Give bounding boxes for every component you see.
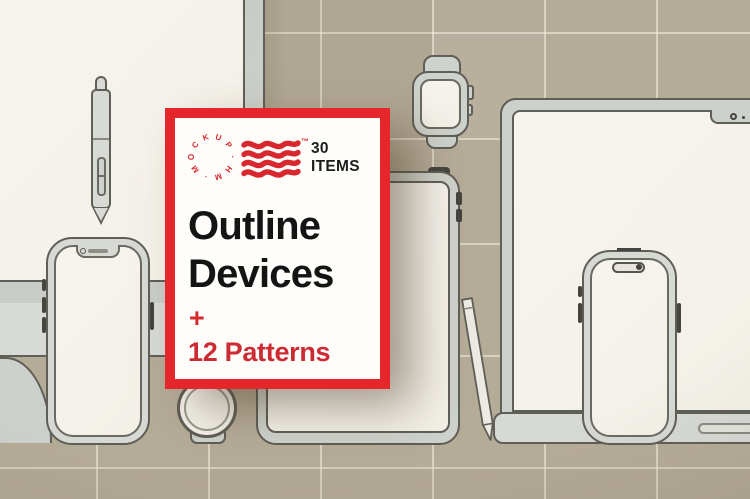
items-badge: 30 ITEMS — [311, 140, 360, 176]
mockup-logo-icon: MOCKUP·HM· — [183, 129, 240, 185]
webcam-icon — [730, 113, 737, 120]
phone-speaker-icon — [88, 249, 108, 253]
promo-scene: MOCKUP·HM· ™ 30 ITEMS Outline Devices + … — [0, 0, 750, 499]
phone-volume-button — [578, 303, 582, 323]
items-label: ITEMS — [311, 158, 360, 176]
phone-volume-down-button — [42, 317, 46, 333]
laptop-lid-notch — [698, 423, 750, 434]
items-count: 30 — [311, 140, 360, 158]
logo-letter: H — [223, 164, 233, 173]
trademark-symbol: ™ — [301, 137, 309, 146]
pen-seam — [93, 138, 109, 140]
promo-card: MOCKUP·HM· ™ 30 ITEMS Outline Devices + … — [165, 108, 390, 389]
logo-letter: O — [188, 154, 196, 160]
card-subtitle: 12 Patterns — [188, 337, 330, 367]
watch-screen — [420, 79, 461, 129]
phone-volume-up-button — [42, 297, 46, 313]
logo-letter: M — [190, 164, 200, 174]
webcam-led-icon — [742, 116, 745, 119]
floor-shade — [0, 467, 750, 499]
plus-sign: + — [189, 304, 205, 332]
grid-line — [0, 467, 750, 469]
card-title: Outline Devices — [188, 202, 334, 298]
logo-letter: C — [190, 141, 200, 150]
phone-power-button — [150, 302, 154, 330]
round-watch-bezel-ring — [184, 385, 230, 431]
phone-antenna-line — [617, 248, 641, 251]
logo-letter: P — [223, 141, 233, 150]
logo-letter: U — [214, 133, 222, 142]
logo-letter: · — [203, 172, 208, 180]
monitor-stand-foot — [0, 357, 52, 443]
tablet-volume-down-button — [456, 209, 462, 222]
phone-mute-switch — [578, 286, 582, 297]
apple-pencil — [450, 290, 505, 450]
pen-side-switch-seam — [98, 175, 105, 177]
phone-power-button — [677, 303, 681, 333]
logo-letter: K — [201, 133, 209, 142]
watch-band-bottom — [426, 135, 458, 149]
tablet-volume-up-button — [456, 192, 462, 205]
logo-letter: · — [228, 156, 236, 159]
card-title-line2: Devices — [188, 250, 334, 298]
card-title-line1: Outline — [188, 202, 334, 250]
phone-camera-icon — [636, 264, 642, 270]
phone-camera-icon — [80, 248, 86, 254]
flag-icon — [241, 138, 301, 180]
phone-mute-switch — [42, 279, 46, 291]
logo-letter: M — [213, 171, 222, 181]
phone-screen — [590, 258, 669, 437]
phone-screen — [54, 245, 142, 437]
